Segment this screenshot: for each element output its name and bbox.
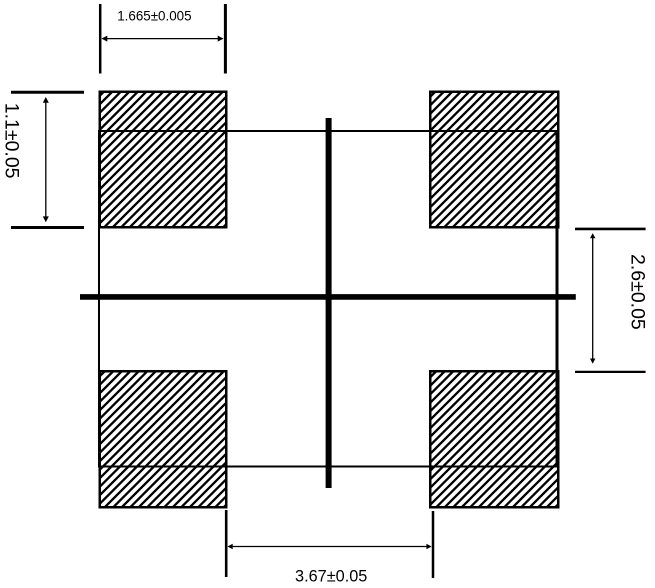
svg-text:1.1±0.05: 1.1±0.05 <box>1 103 23 179</box>
svg-text:1.665±0.005: 1.665±0.005 <box>117 8 191 23</box>
svg-text:3.67±0.05: 3.67±0.05 <box>295 568 367 586</box>
svg-text:2.6±0.05: 2.6±0.05 <box>627 254 649 330</box>
